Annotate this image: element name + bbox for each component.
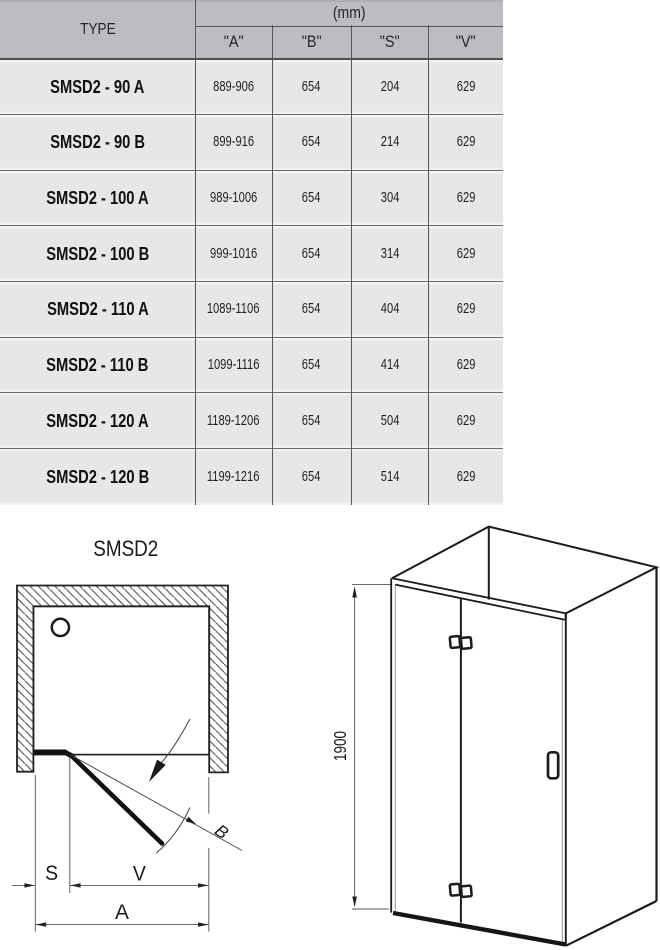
svg-text:1900: 1900: [330, 731, 350, 761]
svg-text:V: V: [133, 862, 147, 886]
svg-text:S: S: [45, 861, 58, 885]
svg-text:A: A: [115, 900, 130, 924]
svg-text:B: B: [211, 820, 232, 843]
svg-text:SMSD2: SMSD2: [93, 536, 158, 561]
